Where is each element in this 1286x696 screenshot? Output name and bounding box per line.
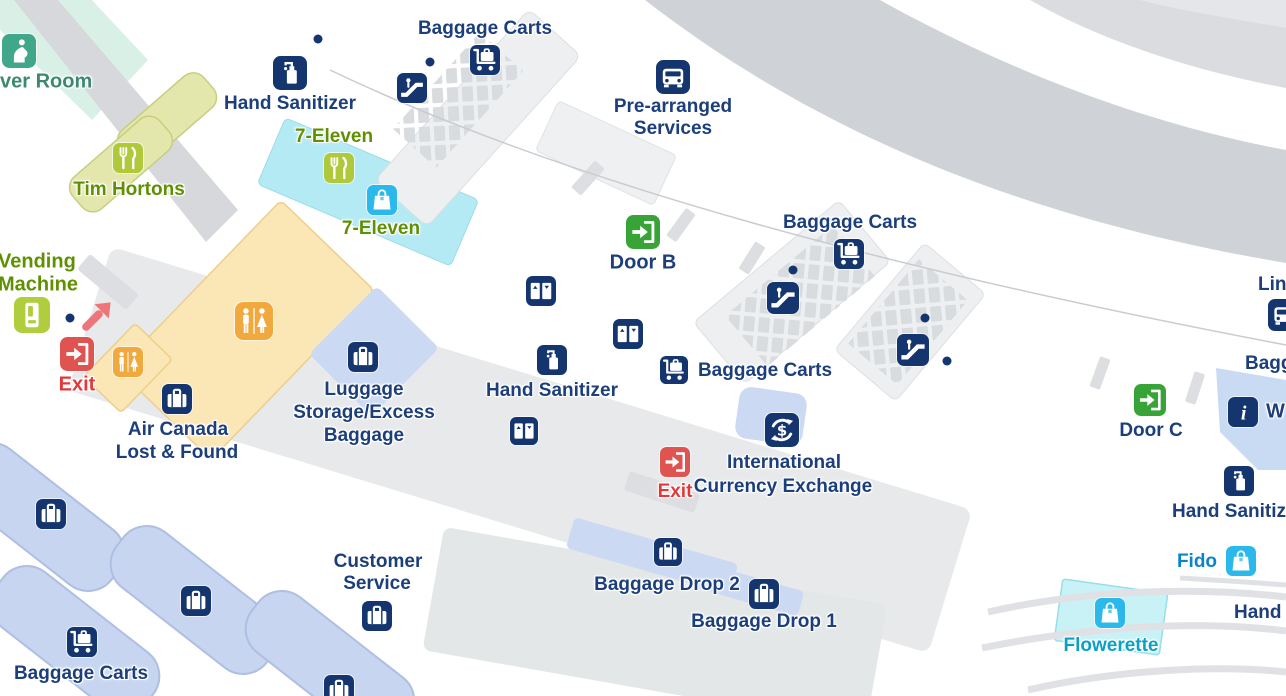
limo-label: Lin (1258, 274, 1286, 296)
location-dot (943, 357, 952, 366)
luggage-storage-icon[interactable] (348, 342, 378, 372)
escalator-icon[interactable] (767, 282, 799, 314)
air-canada-label: Lost & Found (116, 442, 238, 464)
exit-icon[interactable] (60, 337, 94, 371)
location-dot (426, 58, 435, 67)
elevator-icon[interactable] (613, 319, 643, 349)
baggage-cart-icon[interactable] (67, 627, 97, 657)
info-w-label: W (1266, 401, 1285, 424)
escalator-icon[interactable] (397, 73, 427, 103)
baggage-carts-label: Baggage Carts (14, 663, 148, 685)
baggage-drop-icon[interactable] (654, 538, 682, 566)
lost-and-found-icon[interactable] (162, 384, 192, 414)
currency-exchange-label: Currency Exchange (694, 476, 872, 498)
hand-label: Hand (1234, 602, 1282, 624)
currency-exchange-label: International (727, 452, 841, 474)
customer-service-label: Customer (334, 551, 423, 573)
washroom-icon[interactable] (235, 302, 273, 340)
pre-arranged-label: Pre-arranged (614, 96, 732, 118)
vending-machine-label: Machine (0, 274, 78, 297)
shop-icon[interactable] (367, 185, 397, 215)
baggage-carts-label: Baggage Carts (783, 212, 917, 234)
hand-sanitizer-label: Hand Sanitizer (224, 93, 356, 115)
exit-label: Exit (59, 374, 96, 397)
pre-arranged-label: Services (634, 118, 712, 140)
elevator-icon[interactable] (510, 417, 538, 445)
baggage-drop-icon[interactable] (749, 579, 779, 609)
elevator-icon[interactable] (526, 276, 556, 306)
terminal-map[interactable]: $ i (0, 0, 1286, 696)
door-c-icon[interactable] (1134, 384, 1166, 416)
location-dot (789, 266, 798, 275)
luggage-storage-label: Baggage (324, 425, 404, 447)
baggage-drop-2-label: Baggage Drop 2 (594, 574, 740, 596)
customer-service-icon[interactable] (362, 601, 392, 631)
info-icon[interactable] (1228, 397, 1258, 427)
location-dot (314, 35, 323, 44)
baggage-drop-1-label: Baggage Drop 1 (691, 611, 837, 633)
shop-icon[interactable] (1226, 546, 1256, 576)
prayer-room-icon[interactable] (2, 34, 36, 68)
tim-hortons-label: Tim Hortons (73, 179, 185, 201)
prayer-room-label: ver Room (0, 71, 92, 94)
door-b-label: Door B (610, 252, 677, 275)
luggage-storage-label: Luggage (324, 379, 403, 401)
baggage-carts-label: Baggage Carts (698, 360, 832, 382)
baggage-label: Bagg (1245, 353, 1286, 375)
exit-icon[interactable] (660, 447, 690, 477)
hand-sanitizer-icon[interactable] (537, 345, 567, 375)
hand-sanitizer-label: Hand Sanitiz (1172, 501, 1286, 523)
luggage-storage-label: Storage/Excess (293, 402, 435, 424)
washroom-icon[interactable] (113, 347, 143, 377)
location-dot (921, 314, 930, 323)
seven-eleven-label: 7-Eleven (295, 126, 373, 148)
hand-sanitizer-label: Hand Sanitizer (486, 380, 618, 402)
seven-eleven-label: 7-Eleven (342, 218, 420, 240)
shop-icon[interactable] (1095, 598, 1125, 628)
hand-sanitizer-icon[interactable] (1224, 466, 1254, 496)
direction-arrow-icon (79, 296, 117, 334)
baggage-cart-icon[interactable] (470, 45, 500, 75)
hand-sanitizer-icon[interactable] (273, 56, 307, 90)
baggage-carts-label: Baggage Carts (418, 18, 552, 40)
escalator-icon[interactable] (897, 334, 929, 366)
door-c-label: Door C (1119, 420, 1182, 442)
currency-exchange-icon[interactable] (765, 413, 799, 447)
vending-machine-icon[interactable] (14, 297, 50, 333)
flowerette-label: Flowerette (1063, 635, 1158, 657)
baggage-claim-icon[interactable] (324, 675, 354, 696)
baggage-cart-icon[interactable] (660, 356, 688, 384)
restaurant-icon[interactable] (324, 153, 354, 183)
baggage-claim-icon[interactable] (36, 499, 66, 529)
door-b-icon[interactable] (626, 215, 660, 249)
customer-service-label: Service (343, 573, 411, 595)
limo-car-icon[interactable] (1268, 299, 1286, 331)
pre-arranged-services-icon[interactable] (656, 60, 690, 94)
restaurant-icon[interactable] (113, 143, 143, 173)
air-canada-label: Air Canada (128, 419, 228, 441)
location-dot (66, 314, 75, 323)
fido-label: Fido (1177, 551, 1217, 573)
baggage-claim-icon[interactable] (181, 586, 211, 616)
exit-label: Exit (658, 481, 693, 503)
vending-machine-label: Vending (0, 251, 76, 274)
baggage-cart-icon[interactable] (834, 239, 864, 269)
